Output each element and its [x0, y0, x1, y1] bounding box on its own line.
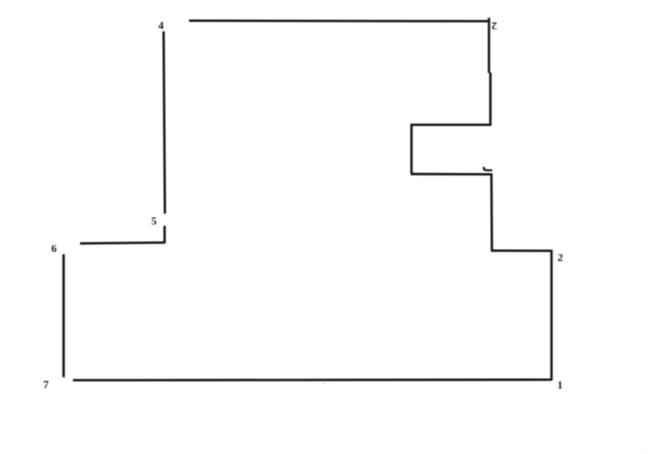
- svg-text:5: 5: [151, 216, 157, 228]
- svg-text:6: 6: [51, 243, 57, 255]
- svg-text:4: 4: [158, 20, 164, 32]
- svg-text:2: 2: [491, 19, 497, 31]
- svg-text:2: 2: [558, 252, 564, 264]
- svg-text:7: 7: [43, 379, 49, 391]
- svg-text:1: 1: [557, 380, 563, 392]
